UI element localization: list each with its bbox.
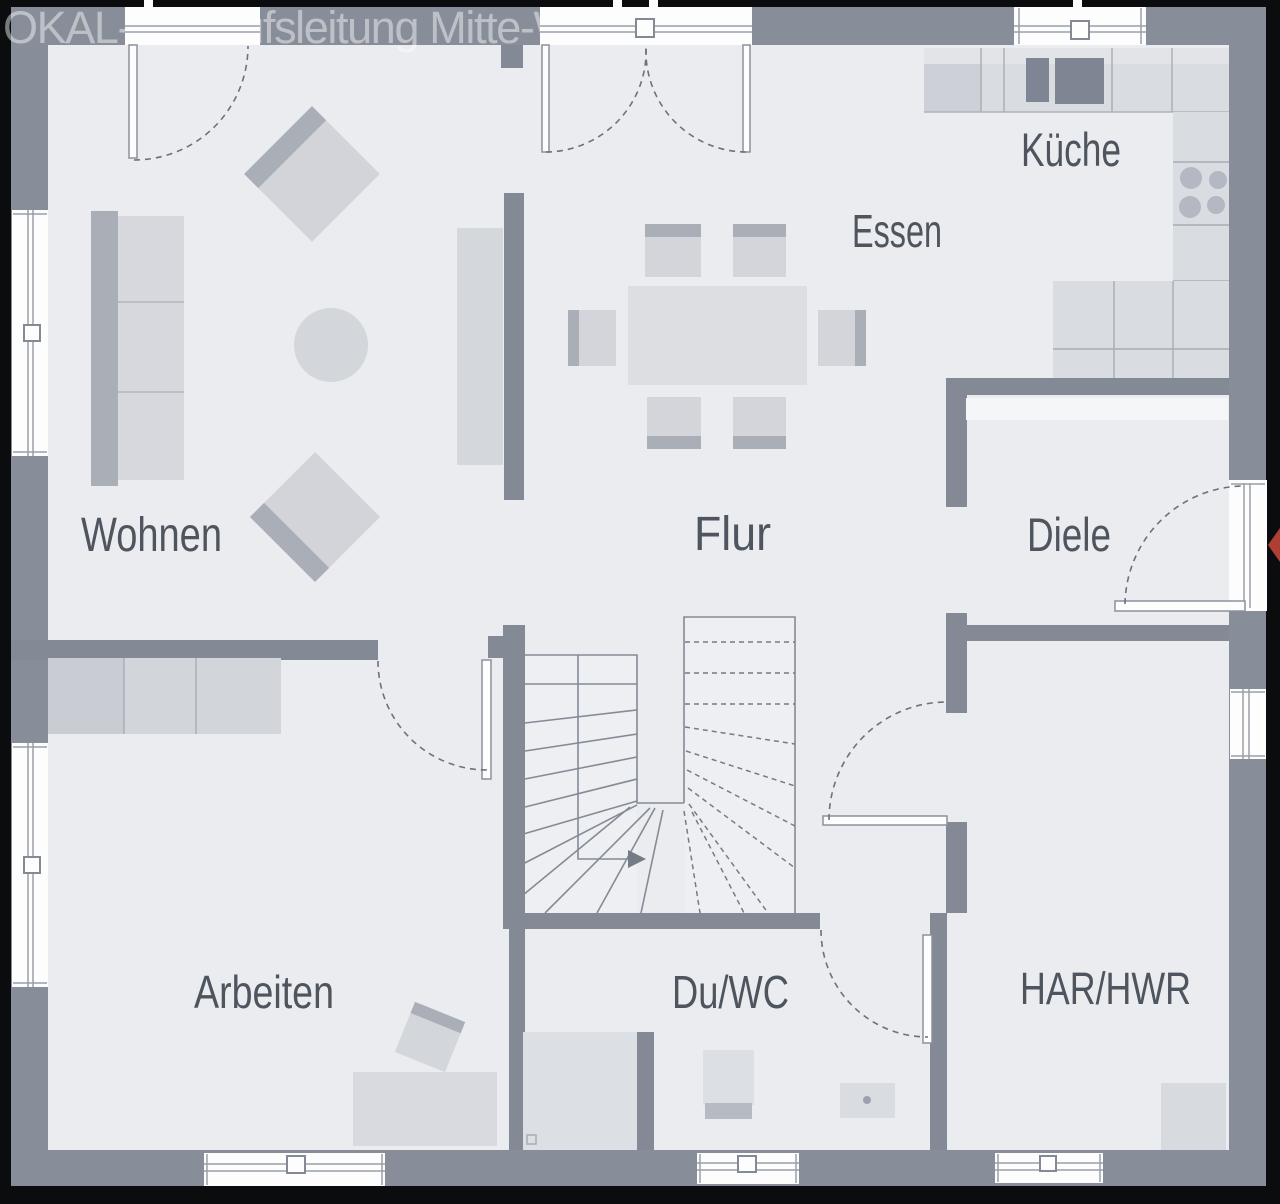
svg-text:Arbeiten: Arbeiten [194,966,334,1018]
svg-text:Wohnen: Wohnen [81,509,222,562]
svg-text:Küche: Küche [1021,123,1121,176]
svg-text:Essen: Essen [852,205,942,257]
svg-text:OKAL-Verkaufsleitung Mitte-Wes: OKAL-Verkaufsleitung Mitte-West [3,2,633,53]
svg-text:HAR/HWR: HAR/HWR [1020,963,1191,1014]
svg-text:Du/WC: Du/WC [672,966,789,1018]
svg-text:Diele: Diele [1027,508,1111,561]
svg-text:Flur: Flur [694,508,771,561]
